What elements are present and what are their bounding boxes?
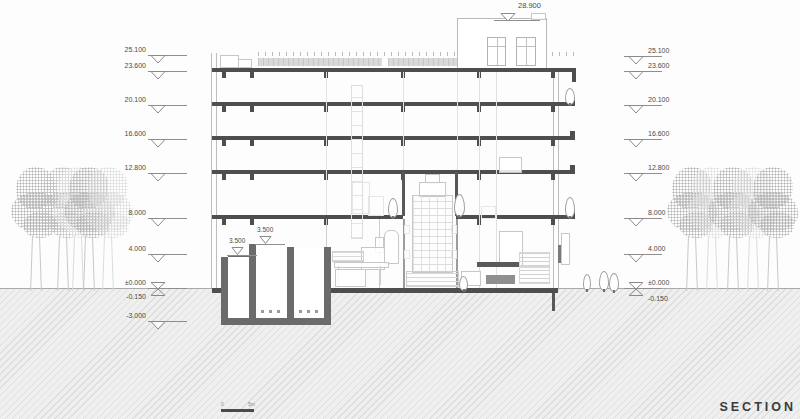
elevation-marker-left-16.600: 16.600 — [100, 129, 190, 147]
scale-bar-rule — [221, 409, 254, 412]
elevation-label: -0.150 — [648, 295, 668, 303]
elevation-label: 28.900 — [518, 2, 541, 10]
elevation-label: ±0.000 — [648, 279, 669, 287]
scale-start-label: 0 — [221, 401, 224, 407]
elevation-marker-interior-3.500: 3.500 — [255, 226, 295, 246]
elevation-label: 3.500 — [229, 237, 245, 245]
elevation-marker-right--0.150: -0.150 — [624, 294, 714, 312]
elevation-label: 3.500 — [257, 226, 273, 234]
sheet-title: SECTION — [719, 400, 796, 414]
elevation-marker-right-16.600: 16.600 — [624, 129, 714, 147]
elevation-label: 23.600 — [648, 62, 669, 70]
elevation-label: 12.800 — [648, 164, 669, 172]
elevation-marker-right-4.000: 4.000 — [624, 244, 714, 262]
elevation-label: 20.100 — [648, 96, 669, 104]
elevation-label: 16.600 — [648, 130, 669, 138]
architectural-section-sheet: 25.10023.60020.10016.60012.8008.0004.000… — [0, 0, 800, 419]
elevation-label: 4.000 — [648, 245, 666, 253]
elevation-marker-right-8.000: 8.000 — [624, 208, 714, 226]
elevation-marker-left--3.000: -3.000 — [100, 311, 190, 329]
elevation-label: 25.100 — [125, 46, 146, 54]
elevation-label: 8.000 — [128, 209, 146, 217]
elevation-marker-left-23.600: 23.600 — [100, 61, 190, 79]
elevation-label: ±0.000 — [125, 279, 146, 287]
elevation-label: 23.600 — [125, 62, 146, 70]
elevation-marker-left-4.000: 4.000 — [100, 244, 190, 262]
elevation-label: 12.800 — [125, 164, 146, 172]
elevation-label: 20.100 — [125, 96, 146, 104]
elevation-marker-right-12.800: 12.800 — [624, 163, 714, 181]
elevation-label: 16.600 — [125, 130, 146, 138]
elevation-label: 8.000 — [648, 209, 666, 217]
elevation-marker-right-20.100: 20.100 — [624, 95, 714, 113]
elevation-marker-left--0.150: -0.150 — [100, 292, 190, 310]
elevation-marker-right-23.600: 23.600 — [624, 61, 714, 79]
elevation-marker-left-12.800: 12.800 — [100, 163, 190, 181]
elevation-marker-left-8.000: 8.000 — [100, 208, 190, 226]
elevation-markers-layer: 25.10023.60020.10016.60012.8008.0004.000… — [0, 0, 800, 419]
scale-end-label: 5m — [248, 401, 255, 407]
elevation-marker-roof-28.900: 28.900 — [490, 1, 580, 23]
elevation-label: -3.000 — [126, 312, 146, 320]
elevation-label: 4.000 — [128, 245, 146, 253]
scale-bar: 0 5m — [221, 401, 255, 413]
elevation-marker-left-20.100: 20.100 — [100, 95, 190, 113]
elevation-label: 25.100 — [648, 47, 669, 55]
elevation-label: -0.150 — [126, 293, 146, 301]
